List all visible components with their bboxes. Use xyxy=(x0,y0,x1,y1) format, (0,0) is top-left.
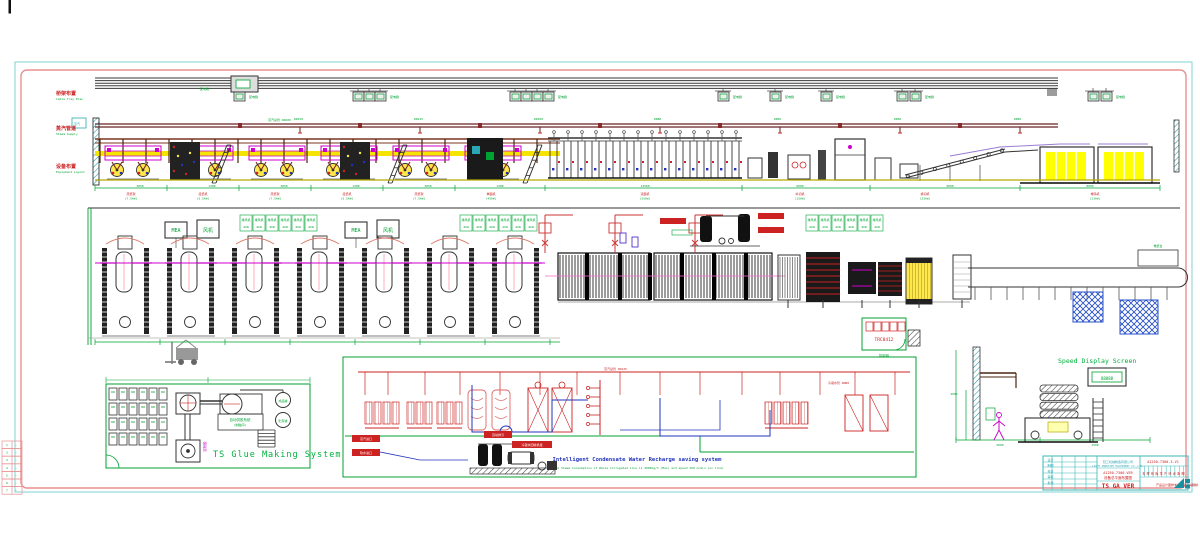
svg-text:排风机: 排风机 xyxy=(807,217,816,222)
glue-room-sub: (制胶间) xyxy=(234,422,247,427)
svg-text:风机: 风机 xyxy=(383,227,393,234)
svg-text:Equipment Layout: Equipment Layout xyxy=(56,170,85,174)
svg-text:原纸架: 原纸架 xyxy=(126,191,135,196)
svg-text:(15kW): (15kW) xyxy=(795,197,806,201)
svg-text:—: — xyxy=(15,481,17,485)
svg-text:生: 生 xyxy=(1160,471,1163,476)
cad-canvas: 配电箱配电箱配电箱配电箱配电箱配电箱配电箱配电箱配电箱蒸汽总管 DN200DN1… xyxy=(0,0,1200,557)
revision-table: 1—2—3—4—5—6—7— xyxy=(2,441,22,494)
speed-display-title: Speed Display Screen xyxy=(1058,357,1136,365)
svg-text:原纸架: 原纸架 xyxy=(414,191,423,196)
speed-display-value: 88888 xyxy=(1101,376,1114,381)
schematic-subtitle: Total Steam Consumption of Whole Corruga… xyxy=(550,466,724,470)
svg-text:4kW: 4kW xyxy=(502,225,508,229)
glue-tank1-label: 成品罐 xyxy=(278,398,287,403)
svg-text:(7.5kW): (7.5kW) xyxy=(125,197,138,201)
svg-text:3050: 3050 xyxy=(424,184,431,188)
svg-text:设: 设 xyxy=(1173,471,1176,476)
svg-text:6: 6 xyxy=(6,481,8,485)
glue-system-title: TS Glue Making System xyxy=(213,450,341,460)
svg-text:4kW: 4kW xyxy=(822,225,828,229)
svg-text:自动排污: 自动排污 xyxy=(492,432,504,437)
glue-kitchen-plan: TS Glue Making System 自动供胶系统 (制胶间) 淀粉胶 成… xyxy=(106,377,341,468)
condensate-schematic: Intelligent Condensate Water Recharge sa… xyxy=(343,357,916,477)
svg-text:(22kW): (22kW) xyxy=(920,197,931,201)
doc-title: 设备总平面布置图 xyxy=(1104,475,1132,480)
svg-text:1380: 1380 xyxy=(496,184,503,188)
svg-text:双面机: 双面机 xyxy=(640,191,649,196)
svg-text:瓦: 瓦 xyxy=(1142,472,1145,476)
svg-text:排风机: 排风机 xyxy=(293,217,302,222)
svg-text:—: — xyxy=(15,451,17,455)
svg-text:(7.5kW): (7.5kW) xyxy=(269,197,282,201)
svg-text:—: — xyxy=(15,443,17,447)
svg-text:原纸架: 原纸架 xyxy=(270,191,279,196)
svg-text:4kW: 4kW xyxy=(835,225,841,229)
middle-band-elevation: MEA风机MEA风机排风机4kW排风机4kW排风机4kW排风机4kW排风机4kW… xyxy=(88,208,1188,365)
svg-text:8000: 8000 xyxy=(1086,184,1093,188)
svg-text:4kW: 4kW xyxy=(515,225,521,229)
svg-text:线: 线 xyxy=(1168,471,1171,476)
svg-text:3050: 3050 xyxy=(280,184,287,188)
svg-text:配电箱: 配电箱 xyxy=(558,94,567,99)
svg-text:楞: 楞 xyxy=(1147,471,1150,476)
svg-text:堆码机: 堆码机 xyxy=(1090,191,1099,196)
svg-text:排风机: 排风机 xyxy=(872,217,881,222)
svg-text:Cable Tray Plan: Cable Tray Plan xyxy=(56,97,83,101)
svg-text:DN50: DN50 xyxy=(894,117,901,121)
svg-text:桥架布置: 桥架布置 xyxy=(56,90,76,97)
svg-text:6000: 6000 xyxy=(796,184,803,188)
schematic-pipe-note1: 蒸汽总管 DN125 xyxy=(604,366,627,371)
svg-text:4: 4 xyxy=(6,466,8,470)
svg-text:横切机: 横切机 xyxy=(920,191,929,196)
svg-text:(5.5kW): (5.5kW) xyxy=(341,197,354,201)
svg-text:1380: 1380 xyxy=(208,184,215,188)
svg-text:堆纸台: 堆纸台 xyxy=(1153,243,1162,248)
svg-text:纵切机: 纵切机 xyxy=(795,191,804,196)
svg-text:TRC8412: TRC8412 xyxy=(875,337,894,343)
svg-text:4kW: 4kW xyxy=(848,225,854,229)
svg-text:4kW: 4kW xyxy=(308,225,314,229)
svg-text:排风机: 排风机 xyxy=(820,217,829,222)
svg-text:13500: 13500 xyxy=(640,184,649,188)
speed-display-section: Speed Display Screen 88888 260050001500 xyxy=(950,347,1150,447)
svg-text:4kW: 4kW xyxy=(243,225,249,229)
svg-text:4kW: 4kW xyxy=(874,225,880,229)
schematic-pipe-note2: 冷凝水管 DN80 xyxy=(828,380,849,385)
svg-text:批准: 批准 xyxy=(1048,480,1054,485)
svg-text:—: — xyxy=(15,489,17,493)
svg-text:排风机: 排风机 xyxy=(474,217,483,222)
svg-text:MEA: MEA xyxy=(351,228,360,234)
svg-text:排风机: 排风机 xyxy=(280,217,289,222)
svg-text:配电箱: 配电箱 xyxy=(249,94,258,99)
svg-text:7: 7 xyxy=(6,489,8,493)
svg-text:4kW: 4kW xyxy=(476,225,482,229)
svg-text:排风机: 排风机 xyxy=(500,217,509,222)
svg-text:板: 板 xyxy=(1155,471,1158,476)
svg-text:4kW: 4kW xyxy=(528,225,534,229)
cad-sheet: 配电箱配电箱配电箱配电箱配电箱配电箱配电箱配电箱配电箱蒸汽总管 DN200DN1… xyxy=(0,0,1200,557)
svg-text:—: — xyxy=(15,466,17,470)
title-block: 轻工机械制造有限公司 LIGHT INDUSTRY MACHINERY CO.,… xyxy=(1043,456,1198,490)
svg-text:排风机: 排风机 xyxy=(306,217,315,222)
svg-text:(7.5kW): (7.5kW) xyxy=(413,197,426,201)
svg-text:排风机: 排风机 xyxy=(513,217,522,222)
svg-text:(45kW): (45kW) xyxy=(486,197,497,201)
svg-text:1500: 1500 xyxy=(1091,443,1098,447)
svg-text:蒸汽进口: 蒸汽进口 xyxy=(360,436,372,441)
svg-text:校对: 校对 xyxy=(1048,468,1054,473)
svg-text:5: 5 xyxy=(6,473,8,477)
svg-text:冷凝水回收机组: 冷凝水回收机组 xyxy=(521,442,542,447)
svg-text:设备布置: 设备布置 xyxy=(56,163,76,170)
svg-text:DN125: DN125 xyxy=(414,117,423,121)
svg-text:(11kW): (11kW) xyxy=(1090,197,1101,201)
svg-text:排风机: 排风机 xyxy=(833,217,842,222)
svg-text:MEA: MEA xyxy=(171,228,180,234)
svg-text:4kW: 4kW xyxy=(489,225,495,229)
svg-text:4kW: 4kW xyxy=(256,225,262,229)
svg-text:配电箱: 配电箱 xyxy=(1116,94,1125,99)
svg-text:(55kW): (55kW) xyxy=(640,197,651,201)
svg-text:DN100: DN100 xyxy=(534,117,543,121)
svg-text:风机: 风机 xyxy=(203,227,213,234)
svg-text:排风机: 排风机 xyxy=(526,217,535,222)
svg-text:2600: 2600 xyxy=(950,392,957,396)
svg-text:—: — xyxy=(15,458,17,462)
top-band-elevation: 配电箱配电箱配电箱配电箱配电箱配电箱配电箱配电箱配电箱蒸汽总管 DN200DN1… xyxy=(56,76,1179,201)
svg-text:5000: 5000 xyxy=(996,443,1003,447)
svg-text:排风机: 排风机 xyxy=(241,217,250,222)
svg-text:1380: 1380 xyxy=(352,184,359,188)
svg-text:DN150: DN150 xyxy=(294,117,303,121)
svg-text:设计: 设计 xyxy=(1048,457,1054,462)
svg-text:产: 产 xyxy=(1164,471,1167,476)
drawing-no: A1250-7300-3-V1 xyxy=(1147,460,1179,464)
doc-no: A1250-7300-VER xyxy=(1103,471,1133,475)
svg-text:4kW: 4kW xyxy=(463,225,469,229)
svg-text:排风机: 排风机 xyxy=(267,217,276,222)
svg-text:配电箱: 配电箱 xyxy=(733,94,742,99)
svg-text:DN80: DN80 xyxy=(654,117,661,121)
svg-text:1: 1 xyxy=(6,443,8,447)
svg-text:配电箱: 配电箱 xyxy=(200,86,209,91)
glue-tank2-label: 贮存罐 xyxy=(278,418,287,423)
glue-shaft-note: 淀粉胶 xyxy=(202,441,207,452)
svg-text:接纸机: 接纸机 xyxy=(198,191,207,196)
svg-text:配电箱: 配电箱 xyxy=(925,94,934,99)
svg-text:审核: 审核 xyxy=(1048,474,1054,479)
svg-text:DN40: DN40 xyxy=(1014,117,1021,121)
svg-text:4kW: 4kW xyxy=(295,225,301,229)
svg-text:排风机: 排风机 xyxy=(461,217,470,222)
svg-text:单面机: 单面机 xyxy=(486,191,495,196)
company-name-en: LIGHT INDUSTRY MACHINERY CO.,LTD. xyxy=(1092,464,1144,468)
svg-text:蒸汽总管 DN200: 蒸汽总管 DN200 xyxy=(268,117,291,122)
big-code: TS GA VER xyxy=(1102,483,1135,490)
svg-text:蒸汽管道: 蒸汽管道 xyxy=(56,125,76,132)
svg-text:4kW: 4kW xyxy=(269,225,275,229)
svg-text:配电箱: 配电箱 xyxy=(836,94,845,99)
svg-text:图: 图 xyxy=(1181,472,1184,476)
svg-text:3: 3 xyxy=(6,458,8,462)
svg-text:配电箱: 配电箱 xyxy=(390,94,399,99)
svg-text:(5.5kW): (5.5kW) xyxy=(197,197,210,201)
company-name-cn: 轻工机械制造有限公司 xyxy=(1103,459,1133,464)
svg-text:纸: 纸 xyxy=(1151,471,1154,476)
svg-text:Steam Supply: Steam Supply xyxy=(56,132,78,136)
svg-text:4kW: 4kW xyxy=(861,225,867,229)
svg-text:4kW: 4kW xyxy=(809,225,815,229)
svg-text:配电箱: 配电箱 xyxy=(785,94,794,99)
svg-text:2: 2 xyxy=(6,451,8,455)
svg-text:接纸机: 接纸机 xyxy=(342,191,351,196)
svg-text:排风机: 排风机 xyxy=(487,217,496,222)
svg-text:制图: 制图 xyxy=(1048,463,1054,468)
svg-text:软水进口: 软水进口 xyxy=(360,450,372,455)
svg-text:排风机: 排风机 xyxy=(859,217,868,222)
svg-text:9000: 9000 xyxy=(946,184,953,188)
svg-text:备: 备 xyxy=(1177,471,1180,476)
svg-text:DN65: DN65 xyxy=(774,117,781,121)
schematic-title: Intelligent Condensate Water Recharge sa… xyxy=(553,457,723,463)
glue-room-label: 自动供胶系统 xyxy=(230,417,251,422)
svg-text:排风机: 排风机 xyxy=(846,217,855,222)
svg-text:—: — xyxy=(15,473,17,477)
svg-text:排风机: 排风机 xyxy=(254,217,263,222)
svg-text:4kW: 4kW xyxy=(282,225,288,229)
svg-text:3050: 3050 xyxy=(136,184,143,188)
